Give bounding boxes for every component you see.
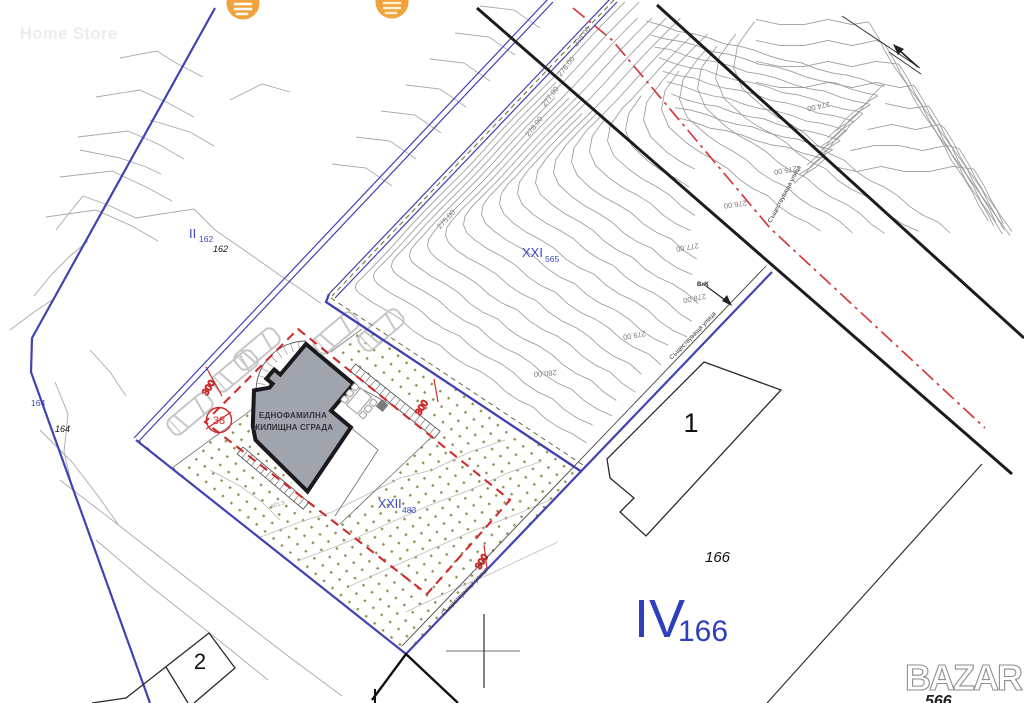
svg-text:483: 483	[402, 505, 416, 515]
svg-text:1: 1	[683, 408, 698, 438]
svg-text:166: 166	[678, 615, 728, 648]
svg-text:162: 162	[199, 234, 213, 244]
svg-text:565: 565	[545, 254, 559, 264]
svg-text:BAZAR: BAZAR	[905, 657, 1023, 698]
svg-text:II: II	[189, 226, 196, 241]
svg-text:ВиК: ВиК	[697, 282, 709, 288]
svg-text:166: 166	[705, 549, 731, 566]
svg-text:164: 164	[31, 398, 45, 408]
svg-text:ЕДНОФАМИЛНА: ЕДНОФАМИЛНА	[259, 411, 327, 420]
svg-text:162: 162	[213, 244, 228, 254]
svg-text:2: 2	[194, 649, 206, 674]
svg-text:XXII: XXII	[378, 497, 402, 511]
svg-text:164: 164	[55, 424, 70, 434]
svg-text:ЖИЛИЩНА СГРАДА: ЖИЛИЩНА СГРАДА	[252, 423, 333, 432]
svg-text:Home Store: Home Store	[20, 25, 118, 43]
svg-text:XXI: XXI	[522, 245, 543, 260]
